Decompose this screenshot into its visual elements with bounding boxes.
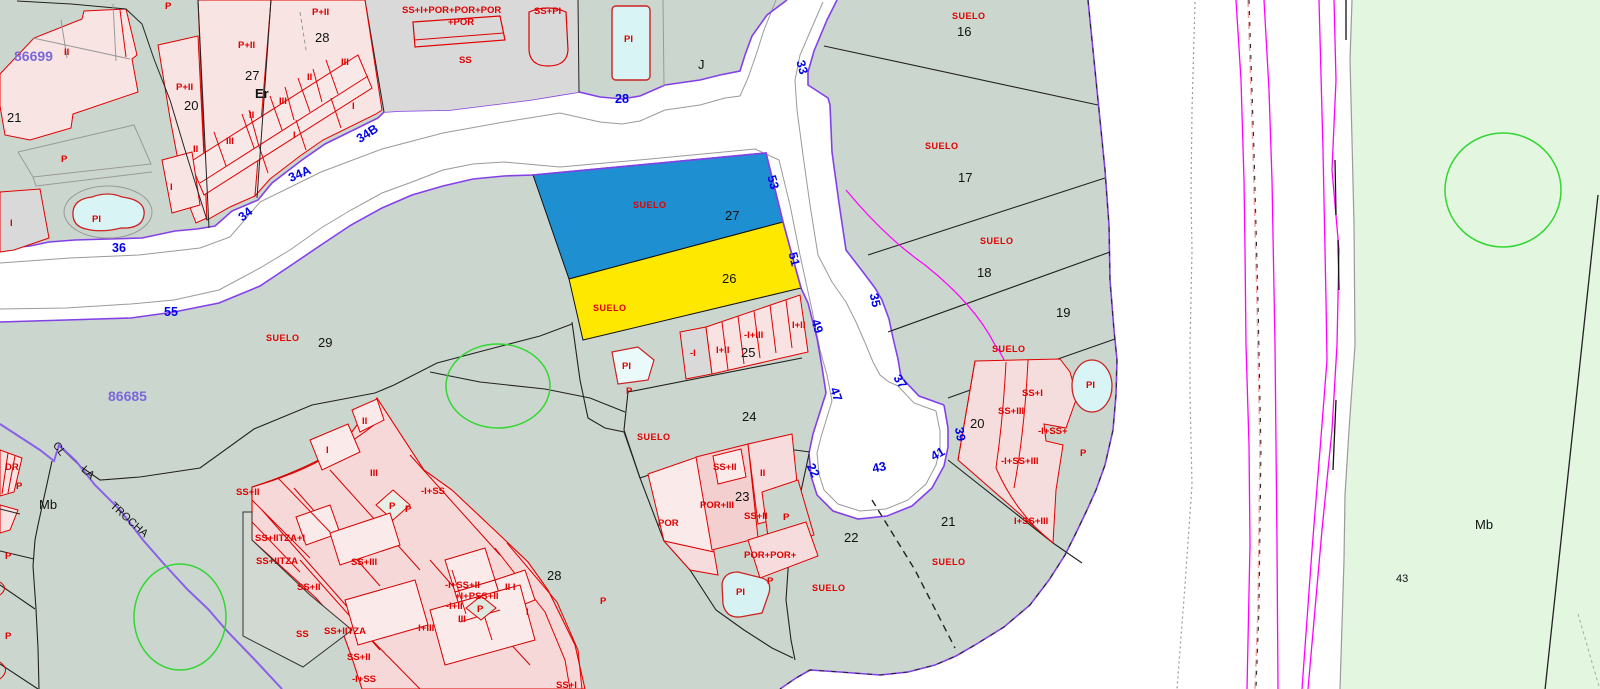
svg-text:23: 23 bbox=[735, 489, 749, 504]
svg-text:SS+IITZA: SS+IITZA bbox=[256, 556, 298, 567]
svg-text:P: P bbox=[783, 512, 790, 523]
svg-text:19: 19 bbox=[1056, 305, 1070, 320]
svg-text:21: 21 bbox=[941, 514, 955, 529]
svg-text:43: 43 bbox=[871, 459, 888, 476]
svg-text:SS+IITZA+I: SS+IITZA+I bbox=[255, 533, 305, 544]
svg-text:SUELO: SUELO bbox=[266, 333, 300, 343]
svg-text:Er: Er bbox=[255, 86, 269, 101]
svg-text:II I: II I bbox=[505, 582, 516, 593]
svg-text:SUELO: SUELO bbox=[980, 236, 1014, 246]
svg-text:28: 28 bbox=[315, 30, 329, 45]
svg-text:-I+III: -I+III bbox=[415, 623, 434, 634]
svg-text:-I+SS+: -I+SS+ bbox=[1038, 426, 1068, 437]
svg-text:SUELO: SUELO bbox=[925, 141, 959, 151]
svg-text:25: 25 bbox=[741, 345, 755, 360]
svg-text:I: I bbox=[170, 182, 173, 193]
svg-text:-I+SS+III: -I+SS+III bbox=[1001, 456, 1039, 467]
svg-text:-I+III: -I+III bbox=[744, 330, 763, 341]
svg-text:-I+SS: -I+SS bbox=[352, 674, 376, 685]
svg-text:21: 21 bbox=[7, 110, 21, 125]
svg-text:20: 20 bbox=[184, 98, 198, 113]
svg-text:28: 28 bbox=[547, 568, 561, 583]
svg-text:17: 17 bbox=[958, 170, 972, 185]
svg-text:16: 16 bbox=[957, 24, 971, 39]
svg-text:SS: SS bbox=[296, 629, 309, 640]
svg-text:P: P bbox=[5, 551, 12, 562]
svg-text:35: 35 bbox=[867, 292, 884, 309]
svg-text:DR: DR bbox=[5, 462, 19, 473]
svg-text:26: 26 bbox=[722, 271, 736, 286]
svg-text:43: 43 bbox=[1396, 573, 1408, 585]
svg-text:P+II: P+II bbox=[238, 40, 255, 51]
svg-text:SUELO: SUELO bbox=[633, 200, 667, 210]
svg-text:III: III bbox=[226, 136, 234, 147]
svg-text:SS+II: SS+II bbox=[297, 582, 321, 593]
svg-text:PI: PI bbox=[736, 587, 745, 598]
svg-text:III: III bbox=[370, 468, 378, 479]
svg-text:II: II bbox=[760, 468, 765, 479]
svg-text:P+II: P+II bbox=[312, 7, 329, 18]
svg-text:-I: -I bbox=[690, 348, 696, 359]
svg-text:27: 27 bbox=[725, 208, 739, 223]
svg-text:39: 39 bbox=[952, 426, 968, 442]
svg-text:P: P bbox=[477, 604, 484, 615]
svg-text:SS+III: SS+III bbox=[998, 406, 1024, 417]
svg-text:P: P bbox=[767, 576, 774, 587]
svg-text:+POR: +POR bbox=[448, 17, 474, 28]
svg-text:24: 24 bbox=[742, 409, 756, 424]
svg-text:PI: PI bbox=[92, 214, 101, 225]
svg-text:III: III bbox=[341, 57, 349, 68]
svg-text:SUELO: SUELO bbox=[952, 11, 986, 21]
svg-text:I+SS+III: I+SS+III bbox=[1014, 516, 1048, 527]
svg-text:SS+II: SS+II bbox=[236, 487, 260, 498]
svg-text:SS+I: SS+I bbox=[556, 680, 577, 689]
svg-text:27: 27 bbox=[245, 68, 259, 83]
svg-text:III: III bbox=[458, 614, 466, 625]
svg-text:SS+IITZA: SS+IITZA bbox=[324, 626, 366, 637]
svg-text:PI: PI bbox=[622, 361, 631, 372]
svg-text:POR+III: POR+III bbox=[700, 500, 734, 511]
svg-text:I+II: I+II bbox=[716, 345, 729, 356]
svg-text:PI: PI bbox=[624, 34, 633, 45]
svg-text:II: II bbox=[249, 110, 254, 121]
svg-text:28: 28 bbox=[615, 92, 629, 106]
svg-text:55: 55 bbox=[164, 305, 178, 319]
svg-text:P: P bbox=[626, 386, 633, 397]
svg-text:SS+II: SS+II bbox=[713, 462, 737, 473]
svg-text:SUELO: SUELO bbox=[593, 303, 627, 313]
svg-text:SS+PI: SS+PI bbox=[534, 6, 561, 17]
svg-text:SUELO: SUELO bbox=[812, 583, 846, 593]
svg-text:I: I bbox=[526, 607, 529, 618]
svg-text:SS+I+POR+POR+POR: SS+I+POR+POR+POR bbox=[402, 5, 501, 16]
svg-text:Mb: Mb bbox=[39, 497, 57, 512]
svg-text:I+II: I+II bbox=[792, 320, 805, 331]
svg-text:P: P bbox=[61, 154, 68, 165]
svg-text:18: 18 bbox=[977, 265, 991, 280]
svg-text:20: 20 bbox=[970, 416, 984, 431]
svg-text:22: 22 bbox=[844, 530, 858, 545]
svg-text:SS: SS bbox=[459, 55, 472, 66]
svg-text:P: P bbox=[16, 481, 23, 492]
svg-text:POR+POR+: POR+POR+ bbox=[744, 550, 797, 561]
svg-text:POR: POR bbox=[658, 518, 679, 529]
svg-text:P: P bbox=[165, 1, 172, 12]
svg-text:P+II: P+II bbox=[176, 82, 193, 93]
svg-text:SUELO: SUELO bbox=[932, 557, 966, 567]
svg-text:86699: 86699 bbox=[14, 48, 53, 64]
svg-text:II: II bbox=[64, 47, 69, 58]
svg-text:Mb: Mb bbox=[1475, 517, 1493, 532]
svg-text:86685: 86685 bbox=[108, 388, 147, 404]
svg-text:-I+SS+II: -I+SS+II bbox=[445, 580, 480, 591]
svg-text:-I+SS: -I+SS bbox=[421, 486, 445, 497]
svg-text:I: I bbox=[326, 445, 329, 456]
svg-text:II: II bbox=[193, 144, 198, 155]
svg-text:SUELO: SUELO bbox=[637, 432, 671, 442]
svg-text:II: II bbox=[307, 72, 312, 83]
svg-text:P: P bbox=[389, 501, 396, 512]
svg-text:III: III bbox=[279, 96, 287, 107]
svg-text:II: II bbox=[362, 416, 367, 427]
svg-text:J: J bbox=[698, 57, 705, 72]
svg-text:SUELO: SUELO bbox=[992, 344, 1026, 354]
svg-text:SS+III: SS+III bbox=[351, 557, 377, 568]
svg-text:I: I bbox=[293, 130, 296, 141]
svg-text:P: P bbox=[5, 631, 12, 642]
svg-text:29: 29 bbox=[318, 335, 332, 350]
svg-text:P: P bbox=[600, 596, 607, 607]
svg-text:P: P bbox=[405, 504, 412, 515]
svg-text:P: P bbox=[1080, 448, 1087, 459]
svg-text:SS+II: SS+II bbox=[744, 511, 768, 522]
svg-text:-I+II: -I+II bbox=[446, 601, 463, 612]
svg-text:SS+I: SS+I bbox=[1022, 388, 1043, 399]
svg-text:I: I bbox=[10, 218, 13, 229]
svg-text:I: I bbox=[352, 101, 355, 112]
svg-text:SS+II: SS+II bbox=[347, 652, 371, 663]
svg-text:36: 36 bbox=[112, 241, 126, 255]
svg-text:PI: PI bbox=[1086, 380, 1095, 391]
